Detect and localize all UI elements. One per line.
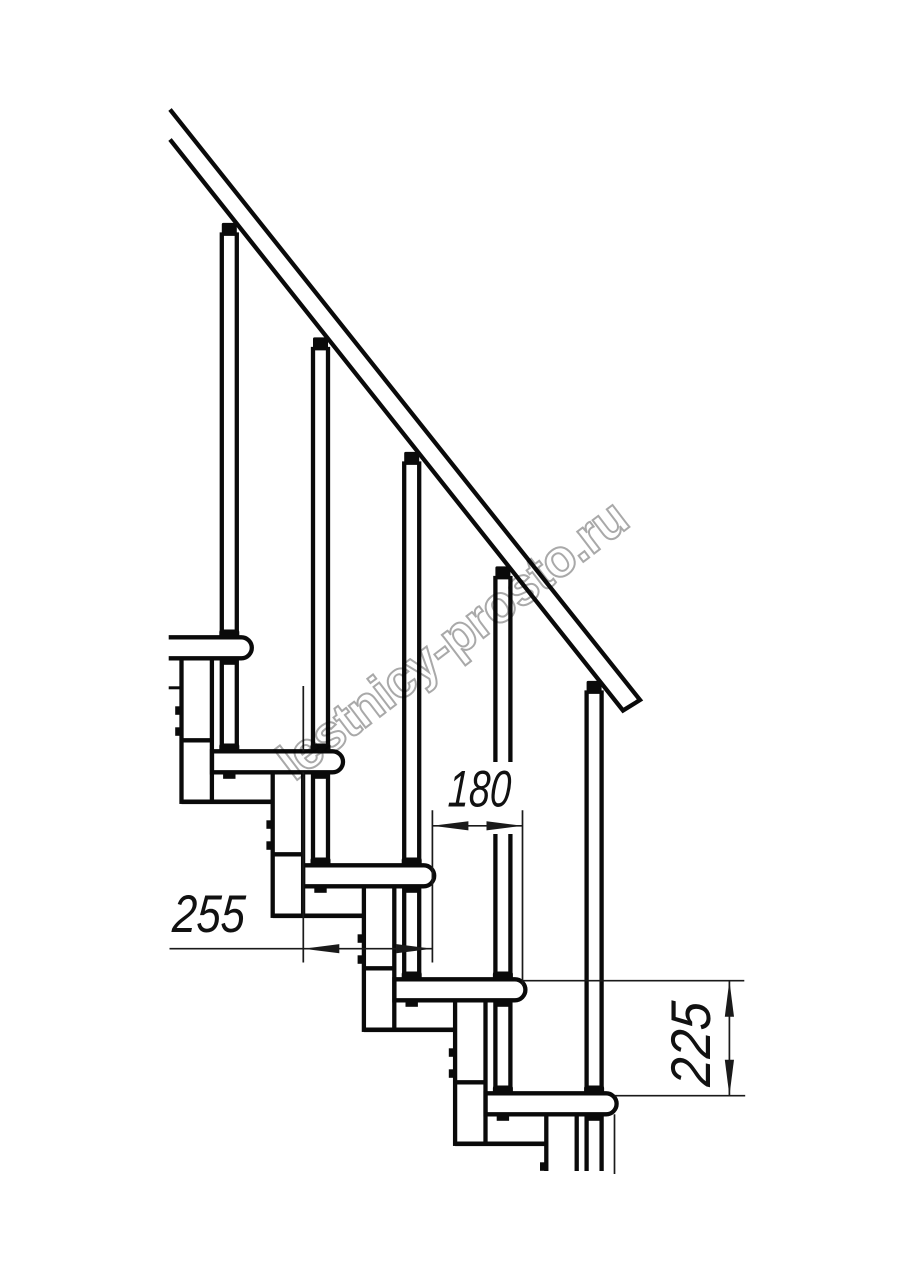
svg-text:180: 180 <box>447 760 513 818</box>
svg-text:255: 255 <box>170 885 248 944</box>
svg-text:225: 225 <box>661 999 723 1088</box>
